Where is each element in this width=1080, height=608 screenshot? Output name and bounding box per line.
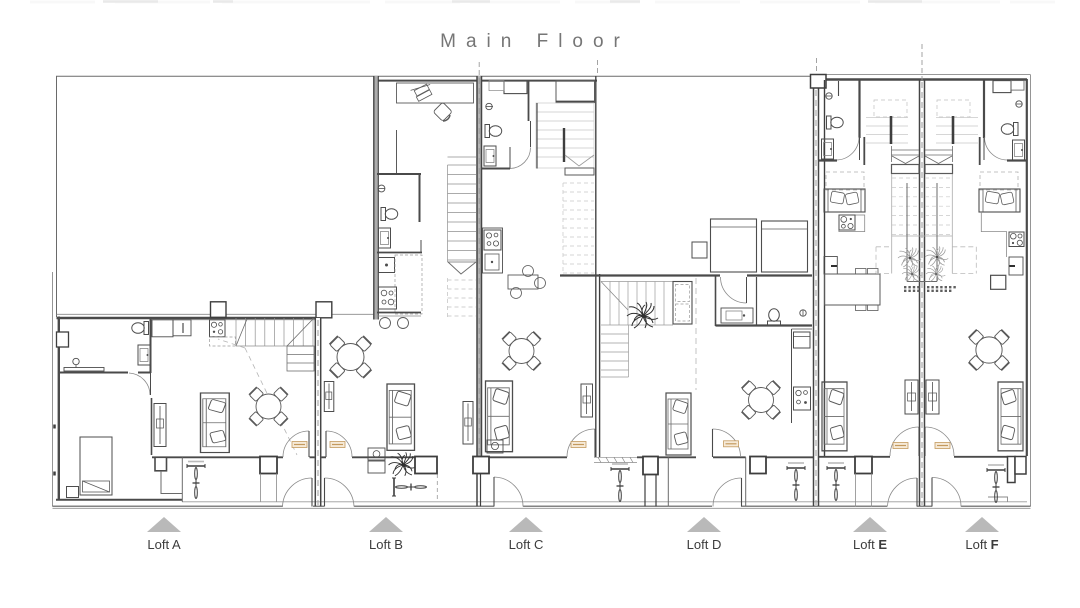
svg-text:Loft B: Loft B: [369, 537, 403, 552]
svg-text:Main Floor: Main Floor: [440, 31, 630, 52]
svg-text:Loft A: Loft A: [147, 537, 181, 552]
svg-text:Loft E: Loft E: [853, 537, 887, 552]
svg-text:Loft D: Loft D: [687, 537, 722, 552]
svg-text:Loft C: Loft C: [509, 537, 544, 552]
svg-text:Loft F: Loft F: [965, 537, 998, 552]
